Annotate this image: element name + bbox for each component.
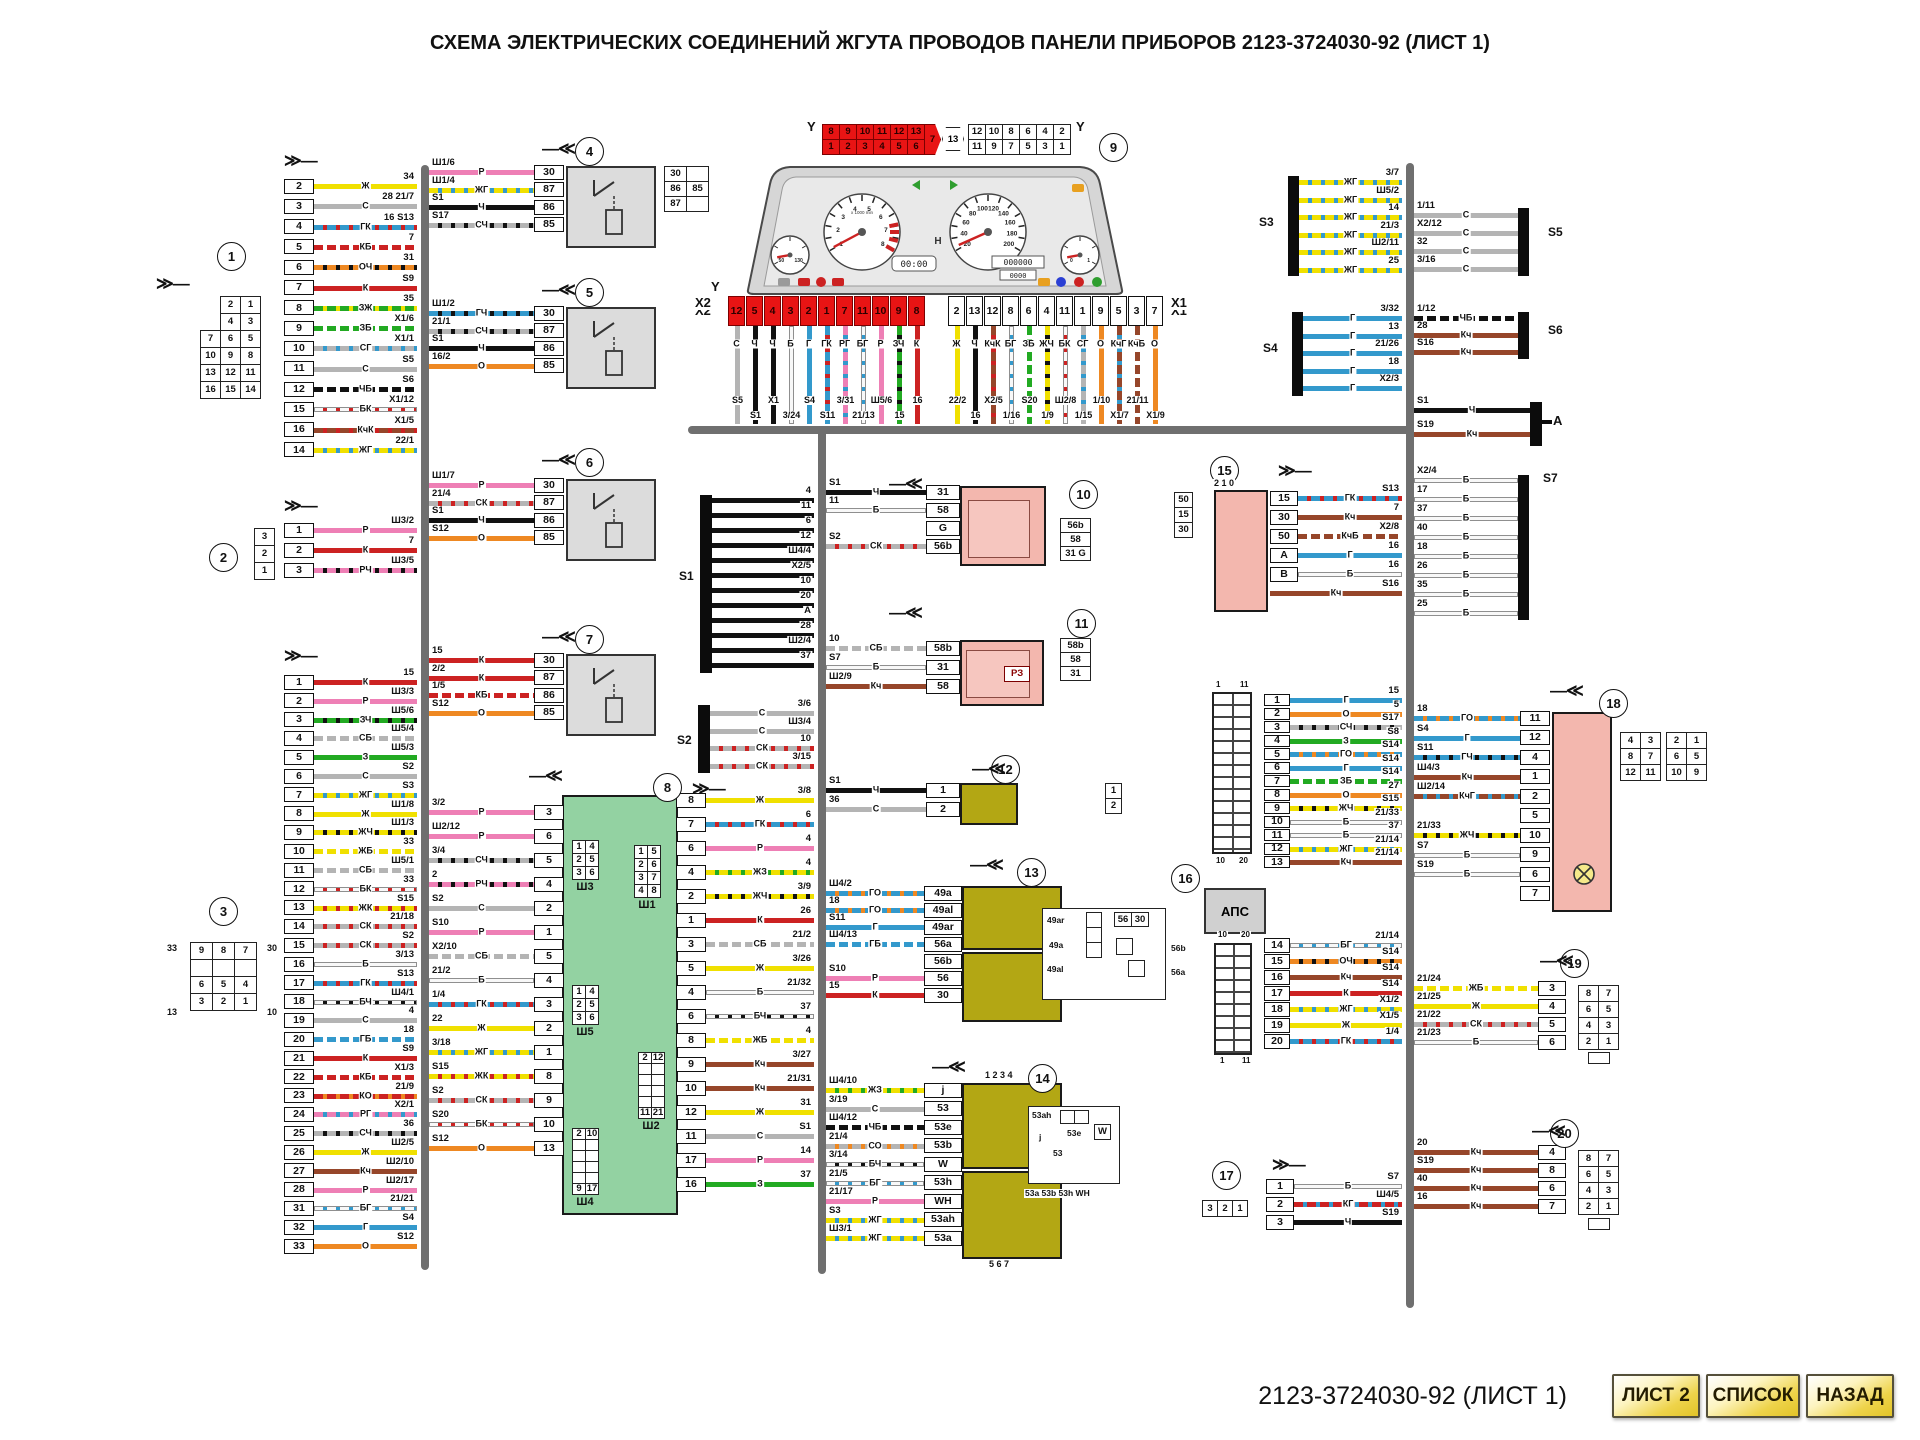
wire-source-label: S2 [828, 532, 842, 542]
wire-code-label: ЖГ [1343, 213, 1358, 222]
wire-dest-label: S1 [798, 1122, 812, 1132]
wire-code-label: ЖГ [474, 1048, 489, 1057]
wire-code-label: Б [786, 340, 794, 349]
grid-cell: 3 [1036, 139, 1054, 155]
wire-dest-label: Ш2/4 [787, 636, 812, 646]
pin-box: 30 [534, 653, 564, 668]
pin-box: 15 [284, 402, 314, 417]
pin-box: 8 [676, 1033, 706, 1048]
oil-pressure-icon [798, 278, 810, 286]
harness-bus [421, 165, 429, 1270]
wire-code-label: КчК [356, 425, 374, 434]
wire-code-label: Ч [872, 786, 880, 795]
wire-dest-label: X1/5 [393, 416, 415, 426]
wire-source-label: 25 [1416, 599, 1429, 609]
wire-dest-label: 1/9 [1040, 411, 1055, 420]
grid-cell: 1 [572, 985, 586, 999]
pin-box: 33 [284, 1239, 314, 1254]
pin-box: 6 [676, 1009, 706, 1024]
component-circle-2: 2 [209, 543, 238, 572]
pin-box: 12 [1264, 843, 1290, 855]
pin-box: WH [924, 1194, 962, 1209]
wire-dest-label: S2 [401, 931, 415, 941]
grid-cell: 9 [985, 139, 1003, 155]
pin-box: 11 [1056, 296, 1073, 326]
grid-cell: 4 [873, 139, 891, 155]
wire-code-label: Б [1342, 831, 1350, 840]
wire-code-label: КО [358, 1091, 373, 1100]
wire-source-label: 3/19 [828, 1095, 849, 1105]
pin-box: 5 [676, 961, 706, 976]
wire-dest-label: 15 [893, 411, 905, 420]
wire-code-label: К [1342, 989, 1350, 998]
wire-dest-label: 5 [1393, 700, 1400, 710]
wire-source-label: 1/5 [431, 681, 446, 691]
wire-code-label: З [756, 1180, 764, 1189]
wire-code-label: ГК [359, 222, 372, 231]
wire-source-label: S12 [431, 699, 450, 709]
wire-source-label: S1 [828, 776, 842, 786]
pin-box: 9 [284, 321, 314, 336]
pin-box: 20 [284, 1032, 314, 1047]
wire-source-label: 18 [1416, 542, 1429, 552]
grid-cell: 4 [1036, 124, 1054, 140]
wire-code-label: ОЧ [1338, 957, 1353, 966]
wire-dest-label: 15 [1387, 686, 1400, 696]
wire-source-label: 16/2 [431, 352, 452, 362]
grid-cell: 1 [1598, 1033, 1619, 1050]
wire-dest-label: Ш1/3 [390, 818, 415, 828]
wire-dest-label: 18 [402, 1025, 415, 1035]
wire-code-label: С [361, 772, 370, 781]
text-label: S7 [1542, 472, 1559, 485]
wire-dest-label: X1 [767, 396, 780, 405]
wire-source-label: S1 [1416, 396, 1430, 406]
doc-number: 2123-3724030-92 (ЛИСТ 1) [1258, 1382, 1567, 1411]
wire-code-label: Кч [1470, 1166, 1483, 1175]
pin-box: 4 [764, 296, 781, 326]
wire-dest-label: 16 [1387, 541, 1400, 551]
wire-code-label: Кч [754, 1084, 767, 1093]
text-label: S1 [678, 570, 695, 583]
wire-code-label: БЧ [358, 997, 372, 1006]
grid-cell: 4 [585, 985, 599, 999]
wire-code-label: ЖЧ [1459, 831, 1476, 840]
text-label: S4 [1262, 342, 1279, 355]
harness-direction-arrow: —≪ [972, 760, 1005, 777]
pin-box: 3 [284, 563, 314, 578]
text-label: 5 6 7 [988, 1260, 1010, 1269]
wire-code-label: ЖК [358, 903, 374, 912]
wire-code-label: ЗБ [1021, 340, 1035, 349]
harness-direction-arrow: —≪ [529, 767, 562, 784]
grid-cell: 8 [822, 124, 840, 140]
harness-direction-arrow: —≪ [542, 281, 575, 298]
wire-code-label: ОЧ [358, 263, 373, 272]
grid-cell: 13 [200, 364, 221, 382]
grid-label: Ш1 [637, 900, 656, 912]
wire-code-label: С [871, 1104, 880, 1113]
wire-source-label: 21/5 [828, 1169, 849, 1179]
wire-source-label: 11 [828, 496, 840, 506]
wire-source-label: S12 [431, 1134, 450, 1144]
wire-code-label: З [362, 753, 370, 762]
grid-cell: 3 [634, 871, 648, 885]
text-label: 56b [1170, 944, 1187, 953]
text-label: 10 [266, 1008, 278, 1017]
instrument-cluster: 1234567820406080100120140160180200501300… [742, 162, 1128, 296]
wire-code-label: Г [1349, 349, 1356, 358]
wire-source-label: Ш2/12 [431, 822, 461, 832]
grid-cell: 6 [907, 139, 925, 155]
wire-code-label: Г [1463, 733, 1470, 742]
wire-dest-label: Ш1/8 [390, 800, 415, 810]
grid-cell: 14 [240, 381, 261, 399]
text-label: X1 [1170, 296, 1188, 310]
wire-dest-label: S14 [1381, 767, 1400, 777]
pin-box: 3 [284, 712, 314, 727]
wire-source-label: 10 [828, 634, 841, 644]
pin-box: 49ar [924, 920, 962, 935]
wire-dest-label: 28 [799, 621, 812, 631]
wire-dest-label: 3/24 [782, 411, 802, 420]
wire-dest-label: X1/1 [393, 334, 415, 344]
wire-source-label: 3/2 [431, 798, 446, 808]
grid-cell: 4 [220, 313, 241, 331]
harness-direction-arrow: —≪ [542, 628, 575, 645]
wire-dest-label: X1/5 [1378, 1011, 1400, 1021]
wire-source-label: X2/12 [1416, 219, 1443, 229]
security-icon [1072, 184, 1084, 192]
wire-code-label: ЖЧ [1338, 804, 1355, 813]
list-button[interactable]: СПИСОК [1706, 1374, 1800, 1418]
wire-dest-label: 20 [799, 591, 812, 601]
handbrake-icon [1074, 277, 1084, 287]
pin-box: 4 [676, 985, 706, 1000]
wire-code-label: Б [1342, 817, 1350, 826]
pin-box: 2 [948, 296, 965, 326]
grid-cell: 1 [1053, 139, 1071, 155]
wire-code-label: К [478, 656, 486, 665]
pin-box: 7 [676, 817, 706, 832]
pin-box: 4 [1520, 750, 1550, 765]
pin-box: 15 [1270, 491, 1298, 506]
wire-source-label: 1/11 [1416, 201, 1436, 211]
harness-direction-arrow: —≪ [889, 604, 922, 621]
wire-dest-label: 37 [799, 1170, 812, 1180]
wire-code-label: Г [1346, 551, 1353, 560]
wire-code-label: Б [872, 506, 880, 515]
pin-box: 5 [534, 853, 564, 868]
wire-code-label: Кч [870, 682, 883, 691]
wire-Ч [712, 513, 814, 518]
wire-code-label: КчГ [1110, 340, 1128, 349]
pin-box: 11 [854, 296, 871, 326]
wire-code-label: Б [1462, 552, 1470, 561]
wire-code-label: С [758, 709, 767, 718]
wire-dest-label: 3/6 [797, 699, 812, 709]
wire-code-label: Ч [477, 344, 485, 353]
wire-code-label: СК [1469, 1020, 1483, 1029]
wire-dest-label: 4 [805, 486, 812, 496]
wire-dest-label: 1/16 [1002, 411, 1022, 420]
grid-cell: 7 [234, 942, 257, 960]
grid-cell: 30 [1131, 912, 1149, 927]
pin-box: 9 [1520, 847, 1550, 862]
grid-cell: 6 [220, 330, 241, 348]
wire-code-label: С [361, 202, 370, 211]
wire-code-label: Г [1342, 763, 1349, 772]
back-button[interactable]: НАЗАД [1806, 1374, 1894, 1418]
wire-code-label: Б [1344, 1182, 1352, 1191]
pin-box: 30 [534, 478, 564, 493]
wire-code-label: БГ [1004, 340, 1018, 349]
pin-box: 25 [284, 1126, 314, 1141]
grid-cell: 16 [200, 381, 221, 399]
wire-code-label: Б [1462, 476, 1470, 485]
wire-code-label: Кч [1470, 1148, 1483, 1157]
svg-text:100: 100 [977, 206, 988, 213]
component-circle-14: 14 [1028, 1064, 1057, 1093]
pin-box: 5 [284, 239, 314, 254]
grid-cell: 2 [572, 853, 586, 867]
wire-code-label: С [361, 364, 370, 373]
wire-dest-label: 21/9 [395, 1082, 416, 1092]
text-label: 53 [1052, 1149, 1063, 1158]
pin-box: 3 [676, 937, 706, 952]
wire-source-label: S19 [1416, 420, 1435, 430]
wire-code-label: К [871, 991, 879, 1000]
pin-box: 7 [836, 296, 853, 326]
grid-cell: 9 [572, 1183, 586, 1195]
pin-box: 9 [676, 1057, 706, 1072]
wire-source-label: 18 [828, 896, 841, 906]
pin-box: 6 [1538, 1035, 1566, 1050]
svg-text:200: 200 [1003, 241, 1014, 248]
wire-code-label: БК [475, 1120, 489, 1129]
wire-dest-label: S14 [1381, 963, 1400, 973]
wire-code-label: Ч [1468, 406, 1476, 415]
pin-box: 3 [1538, 981, 1566, 996]
wire-code-label: Р [871, 1197, 879, 1206]
wire-code-label: Ж [755, 796, 765, 805]
pin-box: 4 [676, 865, 706, 880]
wire-code-label: Б [1472, 1038, 1480, 1047]
hex-pin-cell: 13 [942, 127, 964, 151]
wire-dest-label: S15 [1381, 794, 1400, 804]
pin-box: 7 [1538, 1199, 1566, 1214]
text-label: 20 [1238, 857, 1249, 865]
wire-dest-label: Ш4/1 [390, 988, 415, 998]
wire-code-label: РЧ [474, 880, 488, 889]
pin-box: 3 [1264, 721, 1290, 733]
wire-code-label: О [1341, 790, 1350, 799]
text-label: 49a [1048, 941, 1064, 950]
text-label: 10 [1217, 931, 1228, 939]
text-label: 49al [1046, 965, 1065, 974]
pin-box: 16 [1264, 970, 1290, 985]
grid-cell: 7 [1598, 1150, 1619, 1167]
wire-source-label: 21/22 [1416, 1010, 1442, 1020]
wire-code-label: Ч [768, 340, 776, 349]
wire-code-label: СЧ [358, 1129, 373, 1138]
wire-dest-label: 35 [402, 294, 415, 304]
harness-direction-arrow: —≪ [1540, 952, 1573, 969]
wire-source-label: S1 [431, 506, 445, 516]
grid-cell: 6 [585, 1011, 599, 1025]
grid-cell: 4 [1578, 1017, 1599, 1034]
pin-box: 58b [926, 641, 960, 656]
grid-cell: 4 [1578, 1182, 1599, 1199]
wire-source-label: 35 [1416, 580, 1429, 590]
pin-box: 9 [1092, 296, 1109, 326]
wire-code-label: ГК [1340, 1037, 1353, 1046]
harness-direction-arrow: ≫— [284, 152, 317, 169]
wire-source-label: 21/25 [1416, 992, 1442, 1002]
wire-code-label: Б [756, 988, 764, 997]
pin-box: 4 [534, 877, 564, 892]
grid-cell: 5 [585, 998, 599, 1012]
wire-source-label: Ш1/6 [431, 158, 456, 168]
wire-source-label: Ш1/4 [431, 176, 456, 186]
wire-dest-label: 21/14 [1374, 848, 1400, 858]
pin-box: 11 [284, 863, 314, 878]
wire-dest-label: S3 [401, 781, 415, 791]
svg-text:0000: 0000 [1010, 272, 1027, 280]
grid-cell: 17 [585, 1183, 599, 1195]
pin-box: 11 [1264, 829, 1290, 841]
wire-code-label: С [1462, 229, 1471, 238]
wire-dest-label: 36 [402, 1119, 415, 1129]
wire-dest-label: 34 [402, 172, 415, 182]
grid-cell: 21 [651, 1107, 665, 1119]
pin-box: 3 [782, 296, 799, 326]
wire-code-label: КГ [1342, 1200, 1355, 1209]
component-circle-3: 3 [209, 897, 238, 926]
pin-box: 53h [924, 1175, 962, 1190]
pin-box: 28 [284, 1182, 314, 1197]
abs-icon [1056, 277, 1066, 287]
wire-source-label: 37 [1416, 504, 1429, 514]
text-label: 2 1 0 [1213, 479, 1235, 488]
pin-box: A [1270, 548, 1298, 563]
wire-code-label: СК [869, 542, 883, 551]
grid-cell: 13 [907, 124, 925, 140]
pin-box: 87 [534, 495, 564, 510]
pin-box: 2 [284, 543, 314, 558]
pin-box: 2 [676, 889, 706, 904]
harness-direction-arrow: ≫— [284, 497, 317, 514]
pin-box: 19 [284, 1013, 314, 1028]
grid-cell: 5 [647, 845, 661, 859]
component-circle-11: 11 [1067, 609, 1096, 638]
grid-cell: 2 [254, 545, 275, 563]
wire-source-label: Ш2/14 [1416, 782, 1446, 792]
wire-source-label: 2/2 [431, 664, 446, 674]
pin-box: 53b [924, 1138, 962, 1153]
grid-cell: 11 [240, 364, 261, 382]
text-label: 53ah [1031, 1111, 1052, 1120]
wire-code-label: ЗЖ [358, 303, 374, 312]
pin-box: 12 [676, 1105, 706, 1120]
sheet2-button[interactable]: ЛИСТ 2 [1612, 1374, 1700, 1418]
wire-code-label: КчБ [1340, 532, 1359, 541]
wire-code-label: ЖГ [1343, 248, 1358, 257]
grid-cell: 8 [212, 942, 235, 960]
wire-code-label: ЖГ [1343, 195, 1358, 204]
grid-cell [212, 959, 235, 977]
pin-box: 1 [1074, 296, 1091, 326]
wire-code-label: Ч [477, 516, 485, 525]
wire-dest-label: S9 [401, 274, 415, 284]
grid-cell: 12 [220, 364, 241, 382]
wire-dest-label: 7 [408, 536, 415, 546]
grid-cell: 5 [585, 853, 599, 867]
wire-code-label: ГК [820, 340, 833, 349]
harness-bus [1406, 163, 1414, 1308]
wire-dest-label: 33 [402, 875, 415, 885]
grid-label: Ш2 [641, 1121, 660, 1133]
wire-code-label: Ч [477, 203, 485, 212]
wire-Ч [712, 498, 814, 503]
pin-box: 31 [926, 660, 960, 675]
wire-code-label: ЧБ [868, 1123, 883, 1132]
wire-code-label: СЧ [474, 326, 489, 335]
grid-cell: 3 [572, 866, 586, 880]
component-circle-4: 4 [575, 137, 604, 166]
wire-code-label: БГ [868, 1178, 882, 1187]
pin-box: 5 [1110, 296, 1127, 326]
grid-cell: 4 [234, 976, 257, 994]
wire-dest-label: 25 [1387, 256, 1400, 266]
wire-source-label: S20 [431, 1110, 450, 1120]
text-label: Y [710, 280, 721, 294]
wire-code-label: БК [359, 884, 373, 893]
wire-dest-label: Ш3/3 [390, 687, 415, 697]
pin-box: 16 [284, 422, 314, 437]
wire-code-label: Г [1349, 314, 1356, 323]
pin-box: 13 [966, 296, 983, 326]
grid-cell: 31 [1060, 666, 1091, 681]
wire-dest-label: Ш2/17 [385, 1176, 415, 1186]
wire-code-label: ЖЧ [752, 892, 769, 901]
pin-box: 17 [1264, 986, 1290, 1001]
wire-dest-label: X2/3 [1378, 374, 1400, 384]
harness-direction-arrow: —≪ [932, 1058, 965, 1075]
grid-cell: 1 [822, 139, 840, 155]
wire-code-label: Кч [1460, 348, 1473, 357]
grid-cell: 2 [572, 998, 586, 1012]
pin-box: 56b [924, 954, 962, 969]
grid-cell: 2 [634, 858, 648, 872]
wire-code-label: Б [1462, 609, 1470, 618]
grid-cell [1074, 1110, 1089, 1124]
component-circle-6: 6 [575, 448, 604, 477]
pin-box: 7 [284, 787, 314, 802]
text-label: S5 [1547, 226, 1564, 239]
grid-cell: 9 [1686, 764, 1707, 781]
pin-box: 30 [534, 306, 564, 321]
wire-dest-label: 15 [402, 668, 415, 678]
svg-text:0: 0 [1070, 258, 1073, 264]
wire-source-label: S19 [1416, 860, 1435, 870]
pin-box: 1 [284, 675, 314, 690]
wire-source-label: 22 [431, 1014, 444, 1024]
wire-code-label: ЖГ [1338, 1005, 1353, 1014]
pin-box: 6 [284, 769, 314, 784]
wire-code-label: РЧ [358, 566, 372, 575]
wire-code-label: Р [756, 1156, 764, 1165]
